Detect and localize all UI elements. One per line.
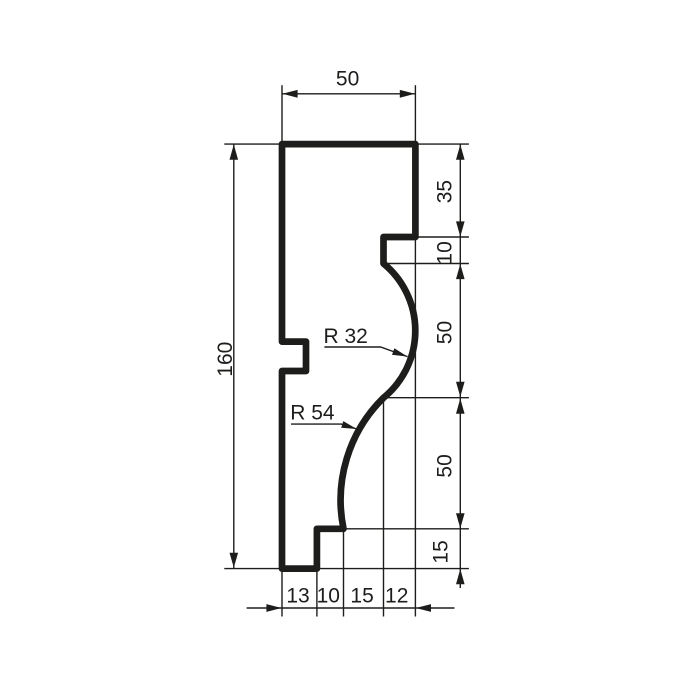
svg-text:15: 15 (350, 584, 373, 607)
svg-text:160: 160 (214, 342, 237, 377)
svg-text:13: 13 (286, 584, 309, 607)
svg-text:35: 35 (434, 180, 457, 203)
svg-text:10: 10 (434, 241, 457, 264)
svg-text:50: 50 (434, 321, 457, 344)
svg-text:10: 10 (317, 584, 340, 607)
svg-text:50: 50 (434, 454, 457, 477)
svg-text:R 32: R 32 (324, 325, 368, 348)
svg-text:12: 12 (385, 584, 408, 607)
svg-text:R 54: R 54 (290, 402, 335, 425)
svg-text:15: 15 (430, 540, 453, 563)
svg-text:50: 50 (336, 68, 359, 91)
